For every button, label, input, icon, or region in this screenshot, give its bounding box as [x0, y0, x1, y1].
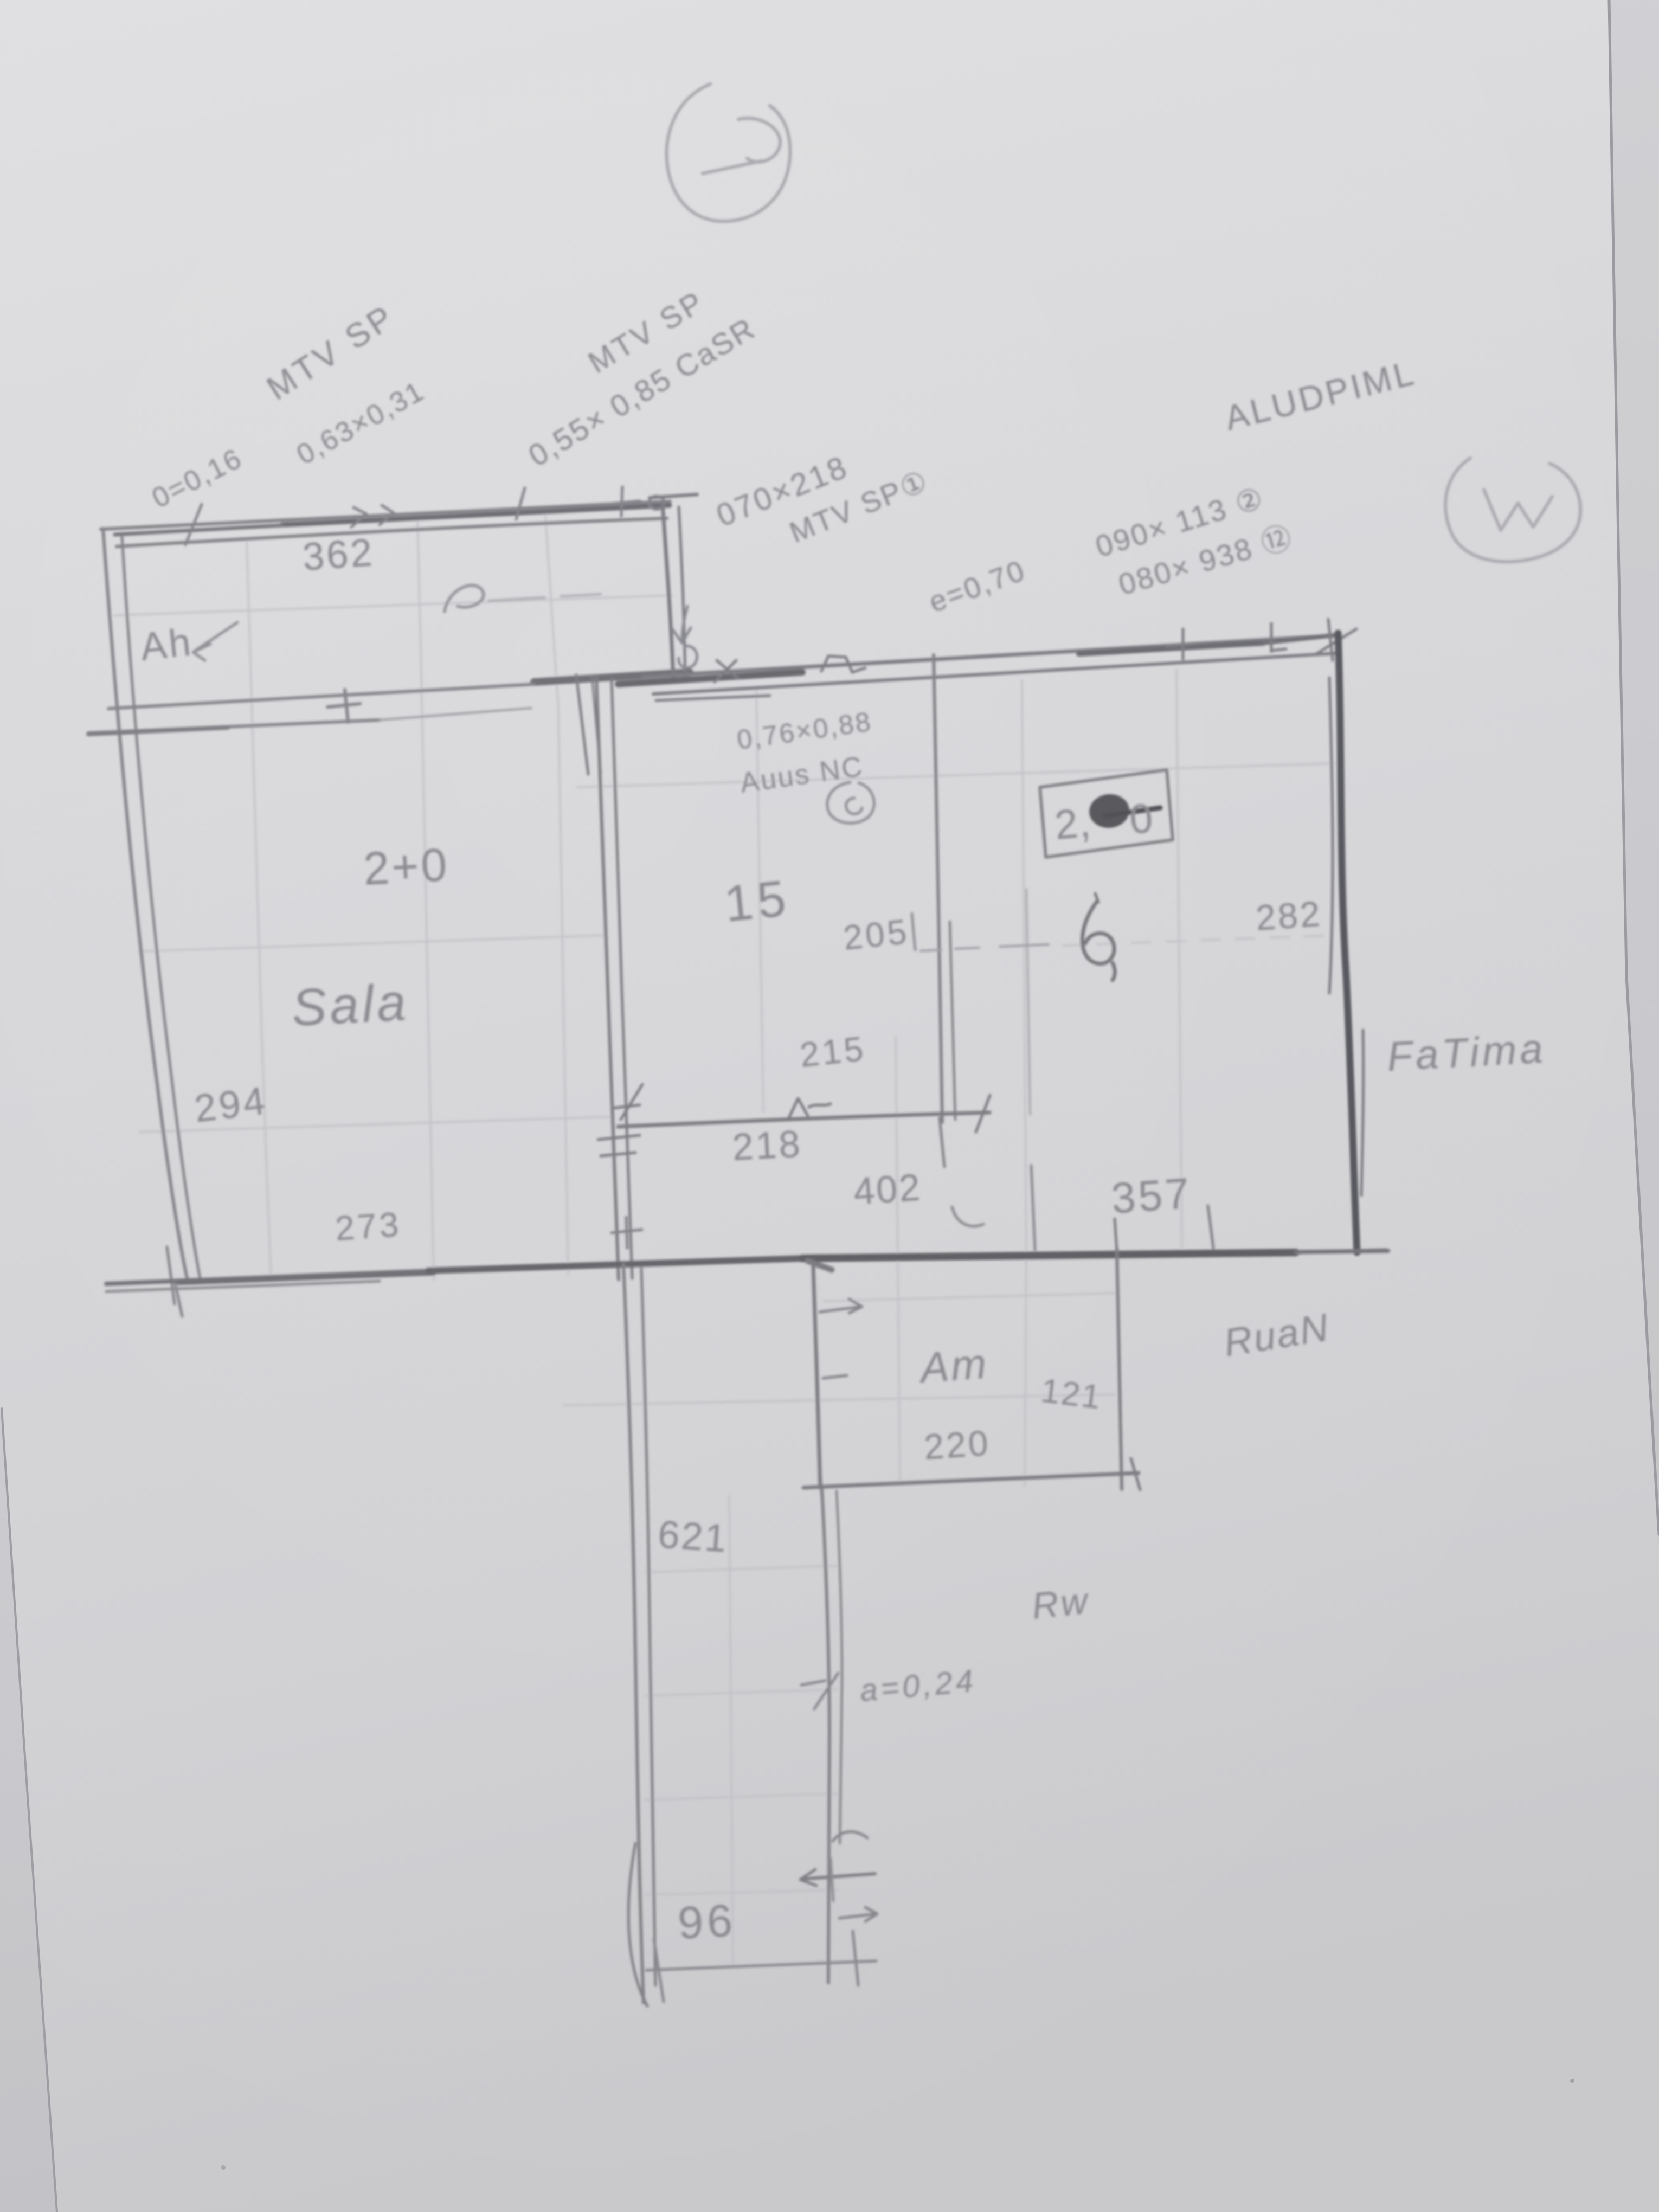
svg-text:402: 402 [852, 1166, 923, 1213]
svg-text:220: 220 [923, 1423, 992, 1467]
svg-text:2,: 2, [1053, 799, 1094, 848]
svg-text:2+0: 2+0 [362, 839, 451, 895]
svg-text:621: 621 [657, 1513, 729, 1561]
svg-text:0: 0 [1128, 795, 1156, 843]
svg-text:273: 273 [334, 1205, 403, 1248]
svg-text:357: 357 [1110, 1169, 1193, 1223]
svg-text:FaTima: FaTima [1386, 1026, 1547, 1080]
svg-text:205: 205 [841, 912, 911, 957]
svg-text:Am: Am [917, 1339, 990, 1392]
svg-text:362: 362 [301, 531, 376, 579]
svg-text:Rw: Rw [1030, 1580, 1092, 1627]
svg-text:218: 218 [731, 1122, 803, 1168]
svg-text:Ah: Ah [138, 620, 195, 669]
svg-text:Sala: Sala [290, 973, 410, 1037]
svg-text:215: 215 [798, 1029, 868, 1075]
svg-text:282: 282 [1255, 893, 1323, 938]
svg-text:294: 294 [192, 1079, 270, 1131]
svg-text:121: 121 [1039, 1372, 1104, 1416]
svg-text:15: 15 [722, 869, 793, 933]
svg-text:96: 96 [677, 1894, 737, 1948]
